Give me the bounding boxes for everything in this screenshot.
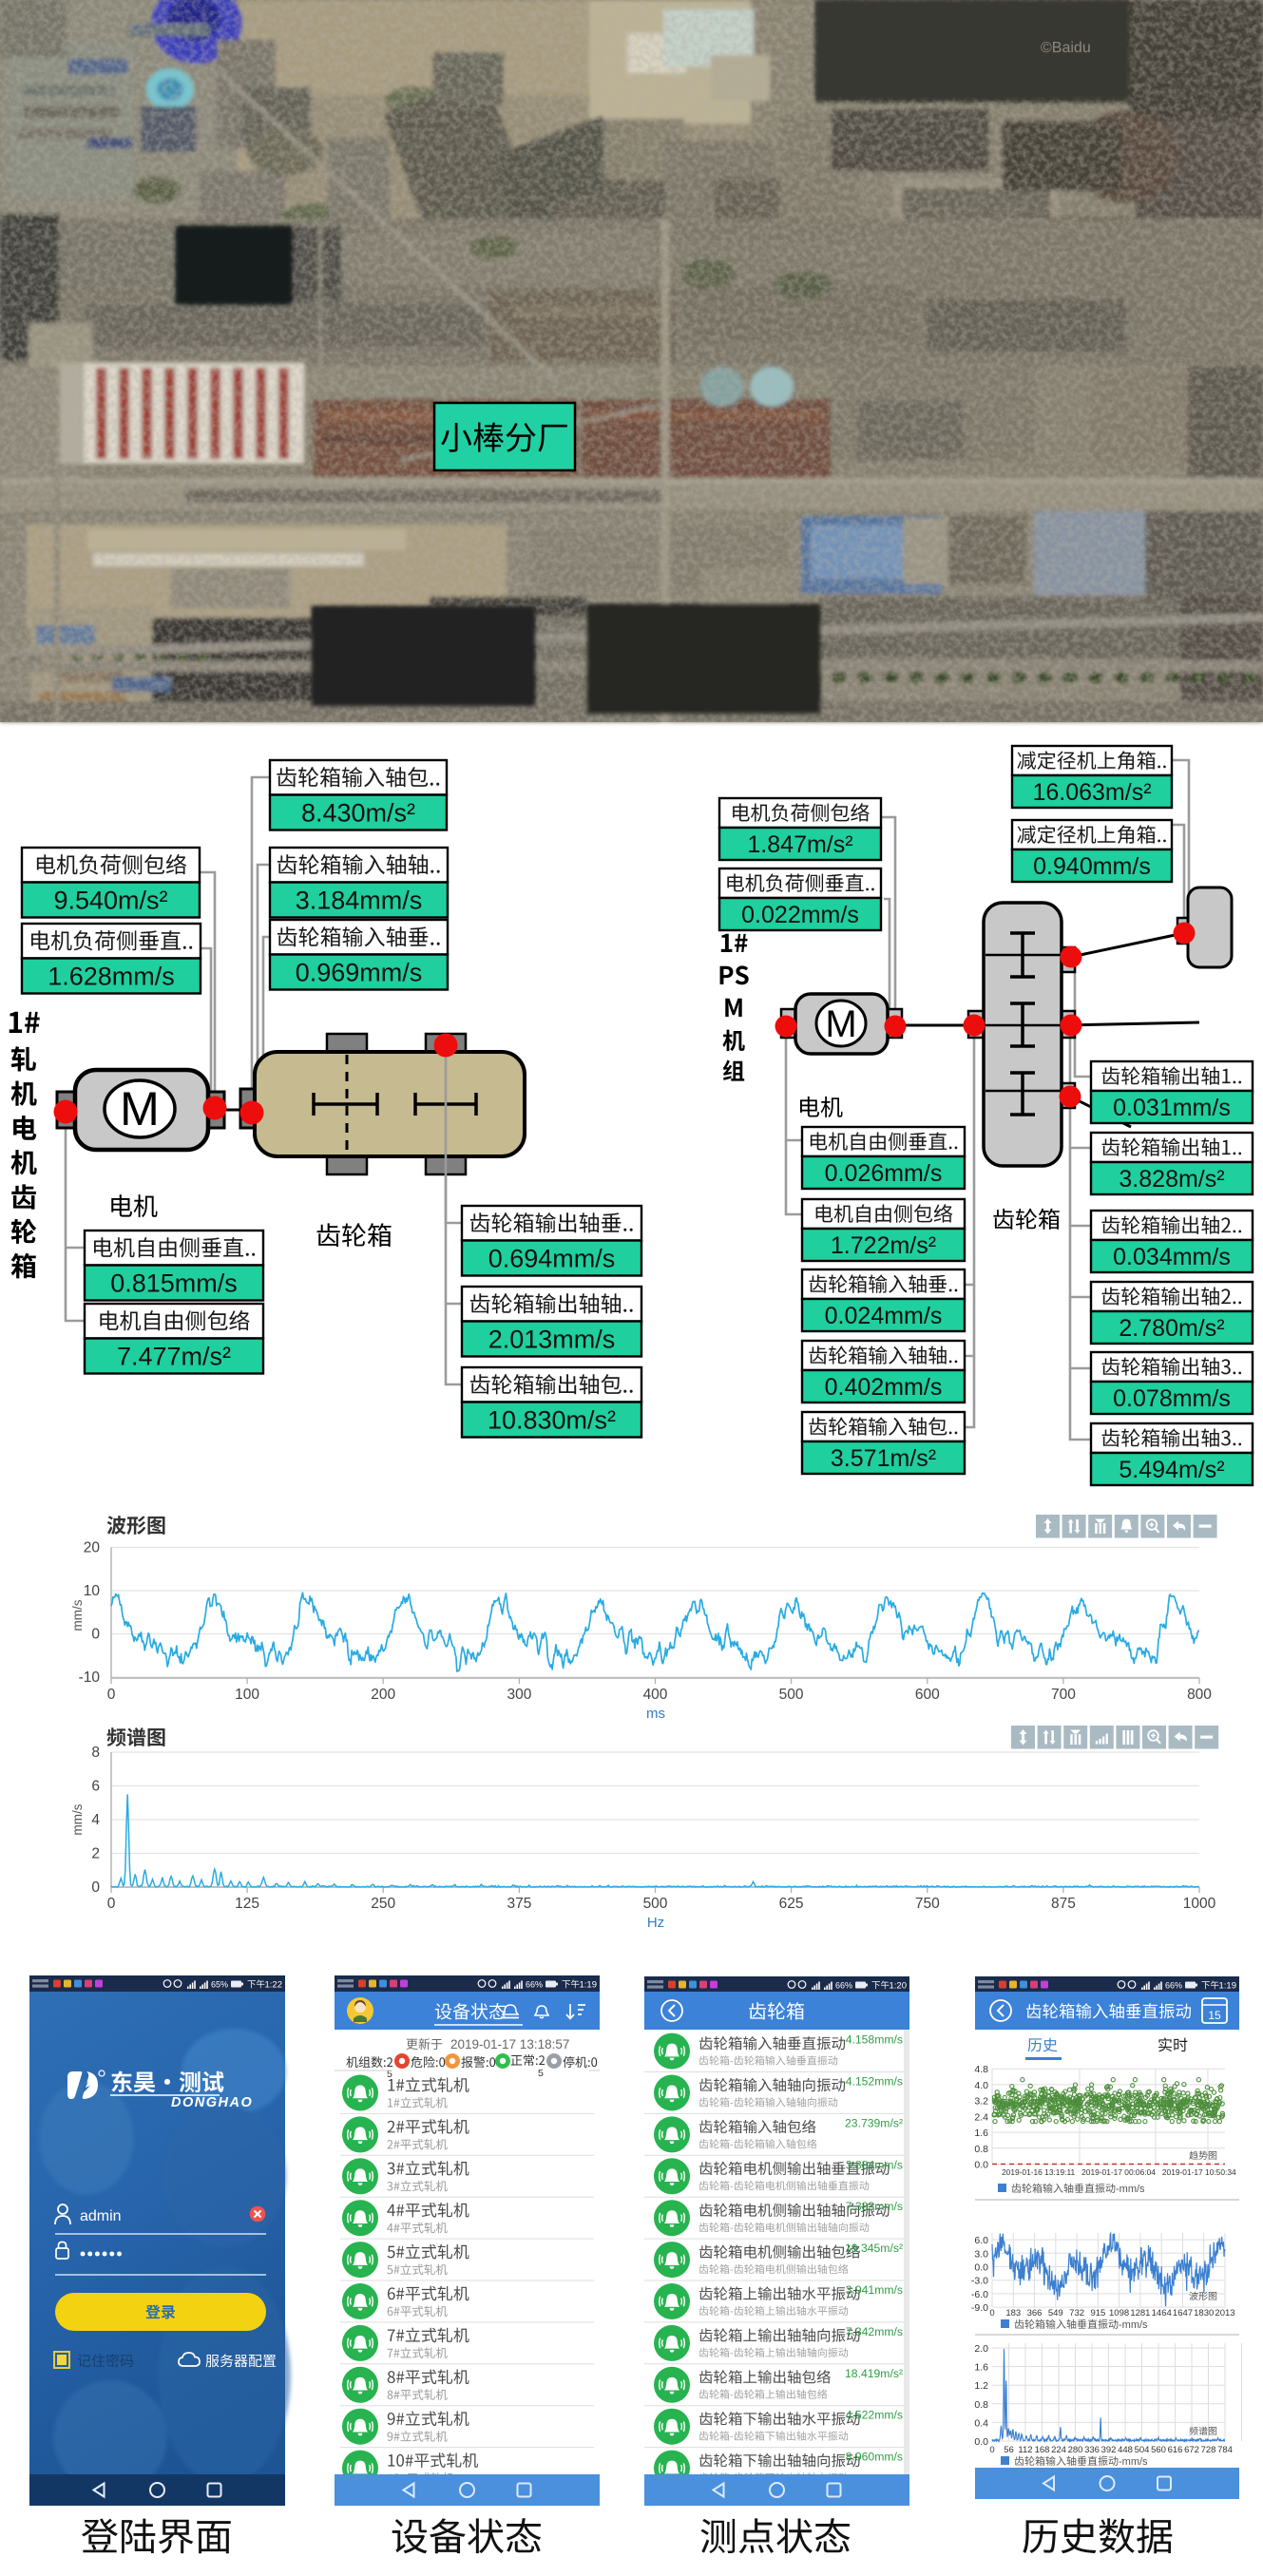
svg-text:1.2: 1.2 xyxy=(974,2380,988,2392)
svg-text:8: 8 xyxy=(91,1745,100,1761)
svg-text:0.034mm/s: 0.034mm/s xyxy=(1113,1244,1231,1270)
svg-text:0.969mm/s: 0.969mm/s xyxy=(296,959,423,987)
svg-text:448: 448 xyxy=(1118,2445,1133,2455)
svg-text:0.694mm/s: 0.694mm/s xyxy=(488,1245,616,1273)
svg-text:ms: ms xyxy=(646,1706,665,1722)
svg-text:mm/s: mm/s xyxy=(70,1803,85,1835)
svg-text:1.722m/s²: 1.722m/s² xyxy=(831,1232,936,1259)
svg-text:9.540m/s²: 9.540m/s² xyxy=(53,887,167,915)
svg-text:15: 15 xyxy=(1208,2009,1221,2022)
svg-text:0: 0 xyxy=(107,1896,116,1912)
svg-text:750: 750 xyxy=(915,1896,940,1912)
svg-text:2019-01-16 13:19:11 2019-01-: 2019-01-16 13:19:11 2019-01-17 00:06:04 … xyxy=(1002,2167,1236,2177)
svg-text:250: 250 xyxy=(371,1896,395,1912)
svg-text:1830: 1830 xyxy=(1194,2308,1214,2318)
svg-text:0.4: 0.4 xyxy=(974,2417,988,2429)
svg-text:915: 915 xyxy=(1090,2308,1105,2318)
svg-text:112: 112 xyxy=(1018,2445,1032,2455)
svg-text:66%: 66% xyxy=(526,1980,543,1990)
svg-text:1.6: 1.6 xyxy=(974,2362,988,2374)
svg-text:mm/s: mm/s xyxy=(70,1599,85,1631)
svg-text:2.780m/s²: 2.780m/s² xyxy=(1119,1315,1224,1342)
svg-text:-3.0: -3.0 xyxy=(971,2276,988,2287)
svg-text:0.0: 0.0 xyxy=(974,2262,988,2274)
svg-text:20: 20 xyxy=(84,1540,101,1556)
svg-text:0.022mm/s: 0.022mm/s xyxy=(741,902,859,928)
svg-text:7.342mm/s: 7.342mm/s xyxy=(846,2325,903,2338)
svg-text:56: 56 xyxy=(1004,2445,1014,2455)
svg-text:16.063m/s²: 16.063m/s² xyxy=(1032,779,1151,806)
svg-text:732: 732 xyxy=(1069,2308,1084,2318)
svg-text:0.8: 0.8 xyxy=(974,2399,988,2411)
svg-text:1:22: 1:22 xyxy=(265,1980,283,1991)
svg-text:0: 0 xyxy=(989,2445,994,2455)
svg-text:23.739m/s²: 23.739m/s² xyxy=(845,2116,903,2129)
svg-text:65%: 65% xyxy=(211,1980,228,1990)
svg-text:4.8: 4.8 xyxy=(974,2064,988,2075)
svg-text:0: 0 xyxy=(107,1687,116,1703)
svg-text:1.847m/s²: 1.847m/s² xyxy=(747,831,852,858)
svg-text:0.078mm/s: 0.078mm/s xyxy=(1113,1385,1231,1412)
svg-text:4.152mm/s: 4.152mm/s xyxy=(846,2075,903,2089)
svg-text:3.184mm/s: 3.184mm/s xyxy=(296,887,423,915)
svg-text:500: 500 xyxy=(779,1687,804,1703)
svg-text:0.0: 0.0 xyxy=(974,2436,988,2448)
svg-text:0.402mm/s: 0.402mm/s xyxy=(825,1374,943,1401)
svg-text:7.477m/s²: 7.477m/s² xyxy=(117,1343,231,1371)
svg-text:0.026mm/s: 0.026mm/s xyxy=(825,1160,943,1187)
svg-text:3.571m/s²: 3.571m/s² xyxy=(831,1445,936,1472)
svg-text:1098: 1098 xyxy=(1109,2308,1129,2318)
svg-text:66%: 66% xyxy=(1165,1981,1182,1991)
svg-text:0: 0 xyxy=(989,2308,994,2318)
svg-text:-mm/s: -mm/s xyxy=(1119,2456,1148,2468)
svg-text:600: 600 xyxy=(915,1687,940,1703)
svg-text:5: 5 xyxy=(538,2068,544,2079)
svg-text:1000: 1000 xyxy=(1183,1896,1216,1912)
svg-text:1.6: 1.6 xyxy=(974,2128,988,2139)
svg-text:©Baidu: ©Baidu xyxy=(1041,40,1091,56)
svg-text:392: 392 xyxy=(1101,2445,1117,2455)
svg-text:2013: 2013 xyxy=(1215,2308,1234,2318)
svg-text:300: 300 xyxy=(507,1687,531,1703)
svg-text:0.024mm/s: 0.024mm/s xyxy=(825,1303,943,1329)
svg-text:1:20: 1:20 xyxy=(890,1981,908,1992)
svg-text:-mm/s: -mm/s xyxy=(1116,2184,1145,2195)
svg-text:DONGHAO: DONGHAO xyxy=(171,2095,253,2110)
svg-text:366: 366 xyxy=(1027,2308,1043,2318)
svg-text:100: 100 xyxy=(235,1687,259,1703)
svg-text:8.960mm/s: 8.960mm/s xyxy=(846,2451,903,2464)
svg-text:18.419m/s²: 18.419m/s² xyxy=(845,2367,903,2380)
svg-text:8.430m/s²: 8.430m/s² xyxy=(301,799,415,828)
svg-text:800: 800 xyxy=(1187,1687,1212,1703)
svg-text:3.828m/s²: 3.828m/s² xyxy=(1119,1166,1224,1193)
svg-text:1:19: 1:19 xyxy=(580,1980,598,1991)
svg-text:200: 200 xyxy=(371,1687,395,1703)
svg-text:0.8: 0.8 xyxy=(974,2144,988,2155)
svg-text:2019-01-17 13:18:57: 2019-01-17 13:18:57 xyxy=(450,2037,569,2051)
svg-text:4: 4 xyxy=(91,1812,100,1828)
svg-text:2.4: 2.4 xyxy=(974,2111,988,2123)
svg-text:Hz: Hz xyxy=(647,1915,664,1931)
svg-text:125: 125 xyxy=(235,1896,259,1912)
svg-text:7.383mm/s: 7.383mm/s xyxy=(846,2200,903,2213)
svg-text:-mm/s: -mm/s xyxy=(1119,2319,1148,2331)
svg-text:875: 875 xyxy=(1051,1896,1076,1912)
svg-text:336: 336 xyxy=(1084,2445,1100,2455)
svg-text:3.941mm/s: 3.941mm/s xyxy=(846,2283,903,2297)
svg-text:2.013mm/s: 2.013mm/s xyxy=(488,1326,616,1354)
svg-text:1464: 1464 xyxy=(1152,2308,1172,2318)
svg-text:616: 616 xyxy=(1168,2445,1183,2455)
svg-text:168: 168 xyxy=(1035,2445,1050,2455)
svg-text:0.0: 0.0 xyxy=(974,2160,988,2171)
svg-text:2: 2 xyxy=(91,1846,100,1862)
svg-text:4.522mm/s: 4.522mm/s xyxy=(846,2409,903,2422)
svg-text:1.628mm/s: 1.628mm/s xyxy=(48,963,175,991)
svg-text:1281: 1281 xyxy=(1130,2308,1150,2318)
svg-text:0.940mm/s: 0.940mm/s xyxy=(1033,853,1151,880)
svg-text:4.0: 4.0 xyxy=(974,2080,988,2091)
svg-text:375: 375 xyxy=(507,1896,531,1912)
svg-text:280: 280 xyxy=(1068,2445,1083,2455)
svg-text:672: 672 xyxy=(1184,2445,1199,2455)
svg-text:6: 6 xyxy=(91,1779,100,1795)
svg-text:224: 224 xyxy=(1051,2445,1066,2455)
svg-text:625: 625 xyxy=(779,1896,804,1912)
svg-text:M: M xyxy=(120,1082,160,1135)
svg-text:700: 700 xyxy=(1051,1687,1076,1703)
svg-text:-6.0: -6.0 xyxy=(971,2289,988,2300)
svg-text:504: 504 xyxy=(1135,2445,1150,2455)
svg-text:0.815mm/s: 0.815mm/s xyxy=(110,1269,238,1298)
svg-text:66%: 66% xyxy=(835,1981,852,1991)
svg-text:1647: 1647 xyxy=(1173,2308,1193,2318)
svg-text:560: 560 xyxy=(1151,2445,1166,2455)
svg-text:3.884mm/s: 3.884mm/s xyxy=(846,2158,903,2171)
svg-text:6.0: 6.0 xyxy=(974,2235,988,2246)
svg-text:3.2: 3.2 xyxy=(974,2096,988,2108)
svg-text:549: 549 xyxy=(1048,2308,1063,2318)
svg-text:-9.0: -9.0 xyxy=(971,2302,988,2314)
svg-text:400: 400 xyxy=(643,1687,668,1703)
svg-text:1:19: 1:19 xyxy=(1219,1981,1237,1992)
svg-text:0: 0 xyxy=(91,1880,100,1896)
svg-text:M: M xyxy=(825,1003,856,1045)
svg-text:-10: -10 xyxy=(79,1670,101,1686)
svg-text:admin: admin xyxy=(80,2208,122,2224)
svg-text:728: 728 xyxy=(1201,2445,1216,2455)
svg-text:784: 784 xyxy=(1217,2445,1233,2455)
svg-text:10: 10 xyxy=(84,1583,101,1599)
svg-text:5.494m/s²: 5.494m/s² xyxy=(1119,1457,1224,1483)
svg-text:4.158mm/s: 4.158mm/s xyxy=(846,2033,903,2047)
svg-text:183: 183 xyxy=(1005,2308,1021,2318)
svg-text:500: 500 xyxy=(643,1896,668,1912)
svg-text:2.0: 2.0 xyxy=(974,2343,988,2355)
svg-text:10.830m/s²: 10.830m/s² xyxy=(488,1406,616,1435)
svg-text:3.0: 3.0 xyxy=(974,2248,988,2260)
svg-text:19.345m/s²: 19.345m/s² xyxy=(845,2242,903,2255)
svg-text:0.031mm/s: 0.031mm/s xyxy=(1113,1095,1231,1121)
svg-text:0: 0 xyxy=(91,1627,100,1643)
